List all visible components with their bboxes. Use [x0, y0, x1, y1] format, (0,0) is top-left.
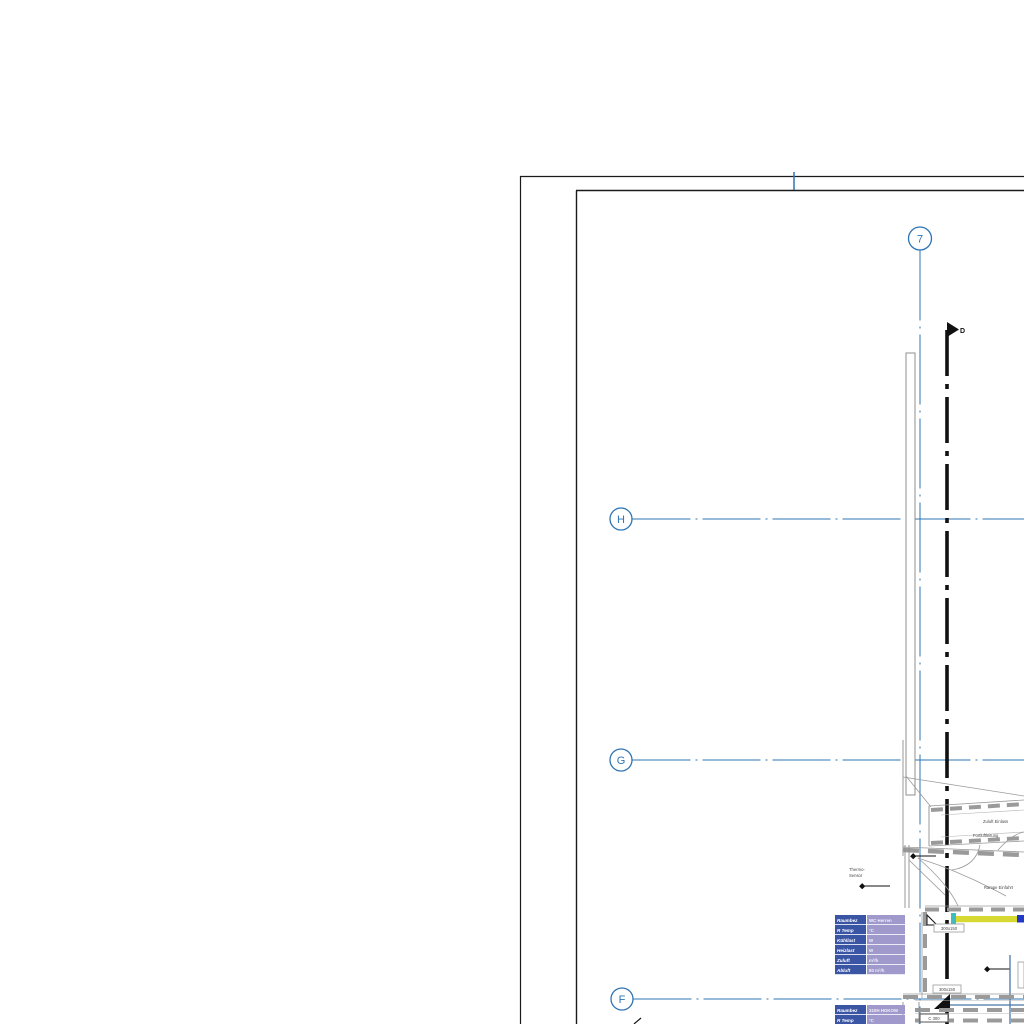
- tag-row-label: Raumbez: [837, 1008, 858, 1013]
- tag-row-label: R Temp: [837, 1018, 854, 1023]
- space-tag-1-row: R Temp °C: [835, 925, 905, 934]
- leader-tick-bottom-left: [634, 1018, 641, 1024]
- tag-row-value: °C: [869, 928, 875, 933]
- tag-row-value: 310H HOKOW: [869, 1008, 899, 1013]
- tag-row-value: °C: [869, 1018, 875, 1023]
- grid-row-h-label: H: [617, 514, 625, 526]
- ramp-curve-3: [952, 845, 980, 870]
- duct-yellow-segment: [956, 916, 1018, 922]
- tag-row-value: WC Herren: [869, 918, 892, 923]
- mid-wall-dashed-band: [903, 850, 1024, 855]
- tag-row-value: m³/h: [869, 958, 879, 963]
- space-tag-1-row: Zuluft m³/h: [835, 955, 905, 964]
- duct-flow-triangle-icon: [927, 915, 937, 925]
- space-tag-1[interactable]: Raumbez WC Herren R Temp °C Kühllast W H…: [835, 915, 905, 974]
- duct-cyan-fitting: [951, 913, 956, 924]
- space-tag-2-row: Raumbez 310H HOKOW: [835, 1005, 905, 1014]
- space-tag-2-row: R Temp °C: [835, 1015, 905, 1024]
- sensor-note-line1: Thermo-: [849, 867, 865, 872]
- wall-vertical-long: [906, 353, 915, 795]
- grid-row-g[interactable]: G: [610, 749, 1024, 771]
- right-edge-fixture: [1018, 962, 1024, 988]
- keynote-1[interactable]: [910, 853, 936, 859]
- ramp-curve-1: [918, 858, 1006, 896]
- space-tag-1-row: Kühllast W: [835, 935, 905, 944]
- duct-highlighted[interactable]: 300x150: [927, 913, 1024, 932]
- space-tag-1-row: Raumbez WC Herren: [835, 915, 905, 924]
- tag-row-value: 80 m³/h: [869, 968, 885, 973]
- space-tag-1-row: Heizlast W: [835, 945, 905, 954]
- duct-upper-inner-line-1: [941, 810, 1024, 815]
- space-tag-1-row: Abluft 80 m³/h: [835, 965, 905, 974]
- grid-row-h[interactable]: H: [610, 508, 1024, 530]
- tag-row-label: Heizlast: [837, 948, 855, 953]
- ramp-note: Rampe Einfahrt: [984, 885, 1014, 890]
- ramp-edge-line-1: [903, 777, 1024, 796]
- tag-row-label: R Temp: [837, 928, 854, 933]
- duct-note-line1: Zuluft Einlass: [983, 819, 1008, 824]
- tag-row-label: Zuluft: [836, 958, 850, 963]
- duct-blue-fitting: [1017, 915, 1024, 923]
- grid-column-7-label: 7: [917, 234, 923, 246]
- duct-size-label-1: 300x150: [941, 926, 958, 931]
- grid-row-g-label: G: [617, 755, 626, 767]
- keynote-2[interactable]: [859, 883, 890, 889]
- duct-size-label-3: C 300: [928, 1016, 940, 1021]
- tag-row-label: Kühllast: [837, 938, 856, 943]
- duct-note-line2: Fortluftleitung: [973, 833, 999, 838]
- duct-size-label-2: 300x150: [939, 987, 956, 992]
- section-flag-label: D: [960, 328, 965, 335]
- sensor-note-line2: Sensor: [849, 873, 863, 878]
- floor-plan-canvas: 7 H G F D Zuluft Einlass Fortlu: [0, 0, 1024, 1024]
- drawing-sheet: 7 H G F D Zuluft Einlass Fortlu: [0, 0, 1024, 1024]
- space-tag-2[interactable]: Raumbez 310H HOKOW R Temp °C: [835, 1005, 905, 1024]
- tag-row-label: Raumbez: [837, 918, 858, 923]
- keynote-3[interactable]: [984, 966, 1010, 972]
- grid-row-f-label: F: [619, 994, 626, 1006]
- tag-row-label: Abluft: [836, 968, 851, 973]
